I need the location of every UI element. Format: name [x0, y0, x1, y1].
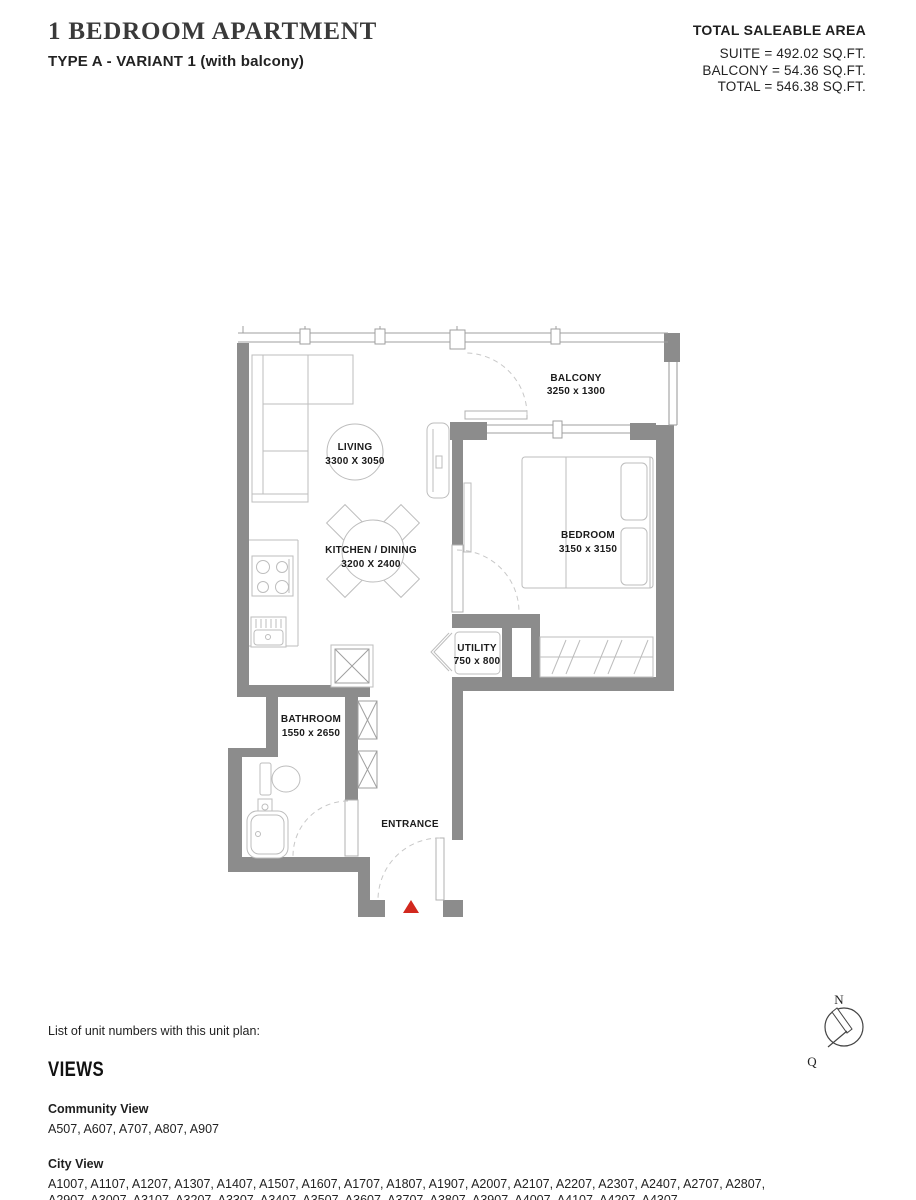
wardrobe	[540, 637, 653, 677]
title-block: 1 BEDROOM APARTMENT TYPE A - VARIANT 1 (…	[48, 18, 377, 70]
bedroom-dims: 3150 x 3150	[559, 544, 618, 555]
compass-q-label: Q	[807, 1054, 817, 1069]
compass: N Q	[790, 975, 900, 1085]
bathtub	[247, 811, 288, 858]
community-view-title: Community View	[48, 1102, 788, 1116]
floor-plan: BALCONY 3250 x 1300 LIVING 3300 X 3050 K…	[225, 318, 690, 924]
shaft-box	[331, 645, 373, 687]
kitchen-label: KITCHEN / DINING	[325, 545, 417, 556]
floor-plan-page: 1 BEDROOM APARTMENT TYPE A - VARIANT 1 (…	[0, 0, 916, 1200]
living-dims: 3300 X 3050	[325, 456, 385, 467]
living-label: LIVING	[338, 442, 373, 453]
city-view-units-line2: A2907, A3007, A3107, A3207, A3307, A3407…	[48, 1192, 788, 1200]
sofa	[252, 355, 353, 502]
kitchen-sink	[251, 617, 286, 647]
total-area: TOTAL = 546.38 SQ.FT.	[693, 79, 866, 96]
compass-north-label: N	[834, 992, 844, 1007]
balcony-dims: 3250 x 1300	[547, 386, 606, 397]
tv-unit	[427, 423, 449, 498]
balcony-door	[465, 353, 527, 419]
city-view-units: A1007, A1107, A1207, A1307, A1407, A1507…	[48, 1176, 788, 1200]
page-subtitle: TYPE A - VARIANT 1 (with balcony)	[48, 53, 377, 70]
city-view-title: City View	[48, 1157, 788, 1171]
toilet	[260, 763, 300, 795]
page-title: 1 BEDROOM APARTMENT	[48, 18, 377, 46]
bedroom-door	[452, 545, 519, 612]
bedroom-label: BEDROOM	[561, 530, 615, 541]
dresser	[464, 483, 471, 552]
bathroom-dims: 1550 x 2650	[282, 728, 341, 739]
balcony-label: BALCONY	[550, 373, 601, 384]
saleable-area-block: TOTAL SALEABLE AREA SUITE = 492.02 SQ.FT…	[693, 22, 866, 96]
area-heading: TOTAL SALEABLE AREA	[693, 22, 866, 38]
balcony-area: BALCONY = 54.36 SQ.FT.	[693, 63, 866, 80]
walls	[228, 333, 680, 917]
views-heading: VIEWS	[48, 1058, 104, 1082]
bathroom-label: BATHROOM	[281, 714, 341, 725]
suite-area: SUITE = 492.02 SQ.FT.	[693, 46, 866, 63]
entrance-marker	[403, 900, 419, 913]
unit-list-section: List of unit numbers with this unit plan…	[48, 1024, 788, 1200]
city-view-units-line1: A1007, A1107, A1207, A1307, A1407, A1507…	[48, 1176, 788, 1192]
entrance-door	[378, 838, 444, 900]
unit-list-intro: List of unit numbers with this unit plan…	[48, 1024, 788, 1038]
bed	[522, 457, 653, 588]
bathroom-door	[293, 800, 358, 856]
utility-label: UTILITY	[457, 643, 497, 654]
utility-dims: 750 x 800	[454, 656, 501, 667]
kitchen-dims: 3200 X 2400	[341, 559, 401, 570]
community-view-units: A507, A607, A707, A807, A907	[48, 1121, 788, 1137]
stove	[252, 556, 293, 596]
entrance-label: ENTRANCE	[381, 819, 439, 830]
shaft-niches	[358, 701, 377, 788]
windows	[238, 326, 677, 438]
